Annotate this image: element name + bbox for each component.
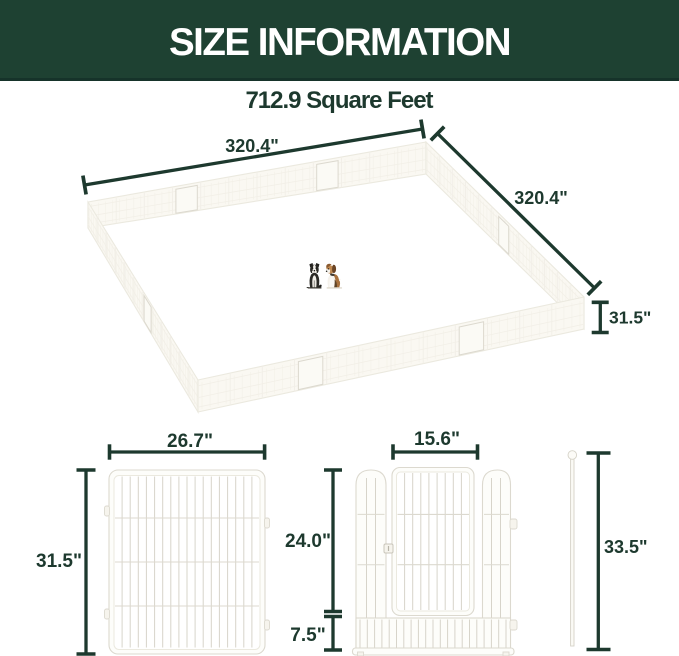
svg-text:320.4": 320.4" xyxy=(514,188,568,208)
svg-text:712.9 Square Feet: 712.9 Square Feet xyxy=(245,87,433,114)
svg-text:320.4": 320.4" xyxy=(225,136,279,156)
svg-text:26.7": 26.7" xyxy=(167,431,213,452)
svg-text:31.5": 31.5" xyxy=(609,308,651,328)
svg-text:15.6": 15.6" xyxy=(414,429,460,450)
svg-text:24.0": 24.0" xyxy=(285,531,331,552)
svg-text:31.5": 31.5" xyxy=(36,551,82,572)
svg-text:7.5": 7.5" xyxy=(290,625,325,646)
svg-text:33.5": 33.5" xyxy=(604,537,648,557)
svg-text:SIZE INFORMATION: SIZE INFORMATION xyxy=(169,21,510,64)
